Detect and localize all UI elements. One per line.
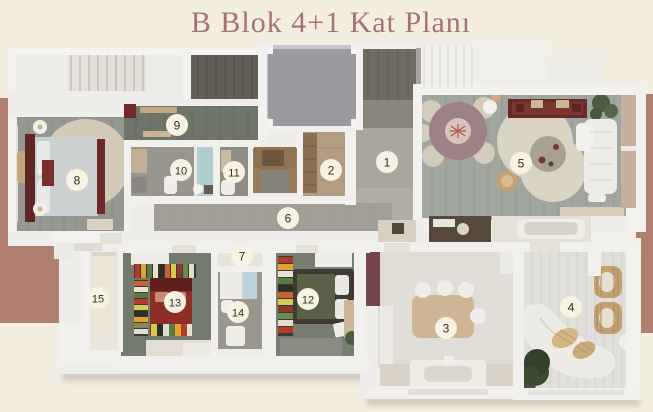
svg-text:1: 1 (384, 156, 391, 170)
svg-text:10: 10 (175, 166, 187, 178)
svg-text:13: 13 (169, 298, 181, 310)
svg-text:2: 2 (328, 164, 335, 178)
svg-text:5: 5 (518, 157, 525, 171)
svg-text:11: 11 (228, 168, 239, 180)
svg-text:3: 3 (443, 322, 450, 336)
svg-text:14: 14 (232, 308, 244, 320)
svg-text:12: 12 (302, 295, 314, 307)
svg-text:9: 9 (174, 119, 181, 133)
svg-text:15: 15 (92, 294, 104, 306)
svg-text:B Blok 4+1 Kat Planı: B Blok 4+1 Kat Planı (191, 6, 471, 39)
svg-text:6: 6 (285, 212, 292, 226)
svg-text:8: 8 (74, 174, 81, 188)
svg-text:4: 4 (568, 301, 575, 315)
svg-text:7: 7 (239, 250, 246, 264)
